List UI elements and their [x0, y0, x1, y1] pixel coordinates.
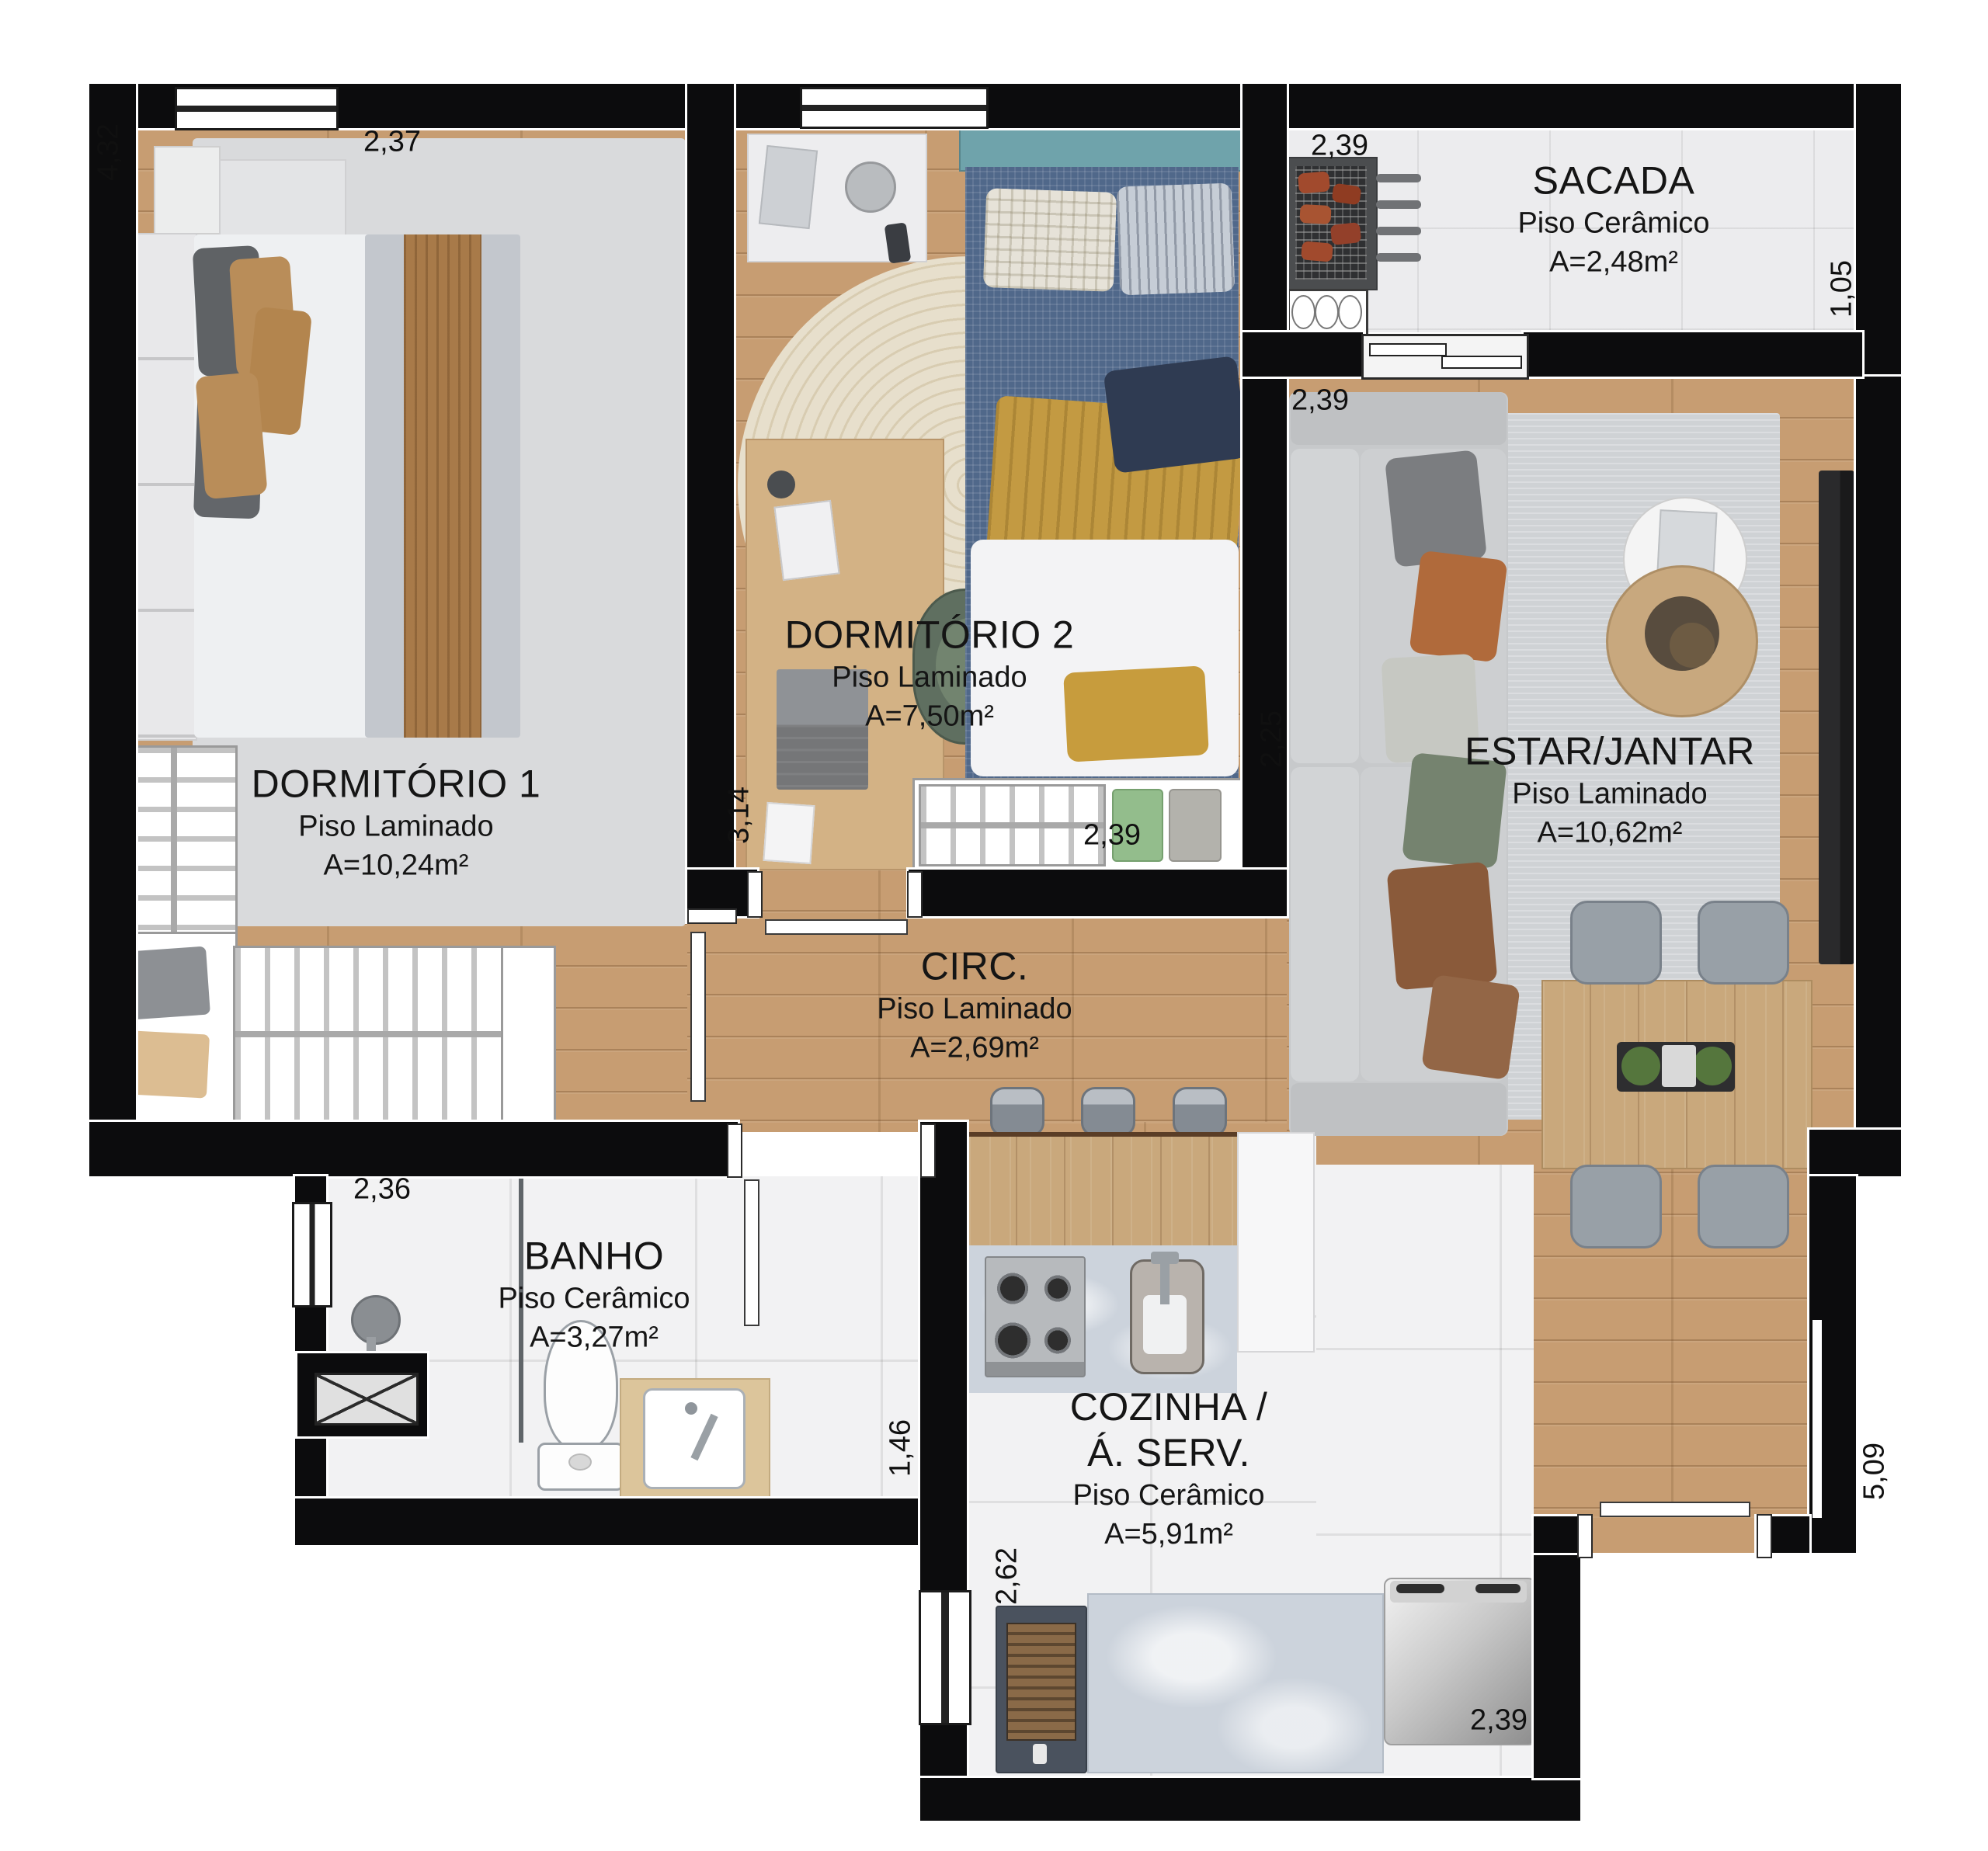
dorm1-folded-clothes-tan: [127, 1030, 210, 1098]
dim-banho-width: 2,36: [353, 1173, 411, 1207]
dim-banho-depth: 1,46: [885, 1419, 918, 1477]
washing-machine-handle-1: [1396, 1584, 1444, 1593]
washing-machine-handle-2: [1475, 1584, 1521, 1593]
dim-estar-side-height: 5,09: [1858, 1443, 1892, 1500]
dorm1-nightstand: [154, 146, 221, 234]
sacada-counter-ring-3: [1338, 295, 1362, 329]
dorm1-area: A=10,24m²: [252, 846, 541, 885]
centerpiece-pebbles: [1662, 1045, 1696, 1087]
sofa-back-cushion-2: [1291, 767, 1359, 1082]
banho-door-jamb-left: [727, 1123, 742, 1178]
wall-sacada-slider-stub: [1242, 332, 1363, 377]
circ-floor-type: Piso Laminado: [877, 989, 1072, 1028]
banho-sink-drain: [685, 1402, 697, 1415]
dorm2-closet-hangers: [919, 784, 1106, 866]
coffee-table-plant-2: [1670, 623, 1715, 668]
dorm2-book: [759, 145, 818, 229]
room-label-banho: BANHO Piso Cerâmico A=3,27m²: [498, 1233, 690, 1356]
wall-cozinha-right: [1534, 1553, 1580, 1778]
dorm2-jacket-gray: [1169, 789, 1222, 862]
dorm1-closet-compartment: [501, 946, 556, 1123]
laundry-counter-marble: [1087, 1593, 1384, 1773]
room-label-dorm2: DORMITÓRIO 2 Piso Laminado A=7,50m²: [785, 612, 1075, 735]
circ-area: A=2,69m²: [877, 1029, 1072, 1068]
estar-name: ESTAR/JANTAR: [1465, 728, 1755, 774]
dorm2-desk-accessory: [767, 471, 795, 498]
toilet-flush-button: [568, 1453, 592, 1471]
dining-chair-1: [1570, 901, 1662, 985]
dorm1-window: [175, 87, 339, 130]
dorm1-closet-hangers-bottom: [233, 946, 506, 1123]
dorm1-name: DORMITÓRIO 1: [252, 761, 541, 807]
dorm1-bed-headboard: [134, 233, 197, 741]
dorm1-folded-clothes-gray: [127, 946, 210, 1020]
sacada-sliding-door-panel-1: [1369, 343, 1447, 356]
bar-stool-1: [990, 1087, 1044, 1137]
banho-door-leaf: [744, 1179, 759, 1326]
dim-dorm1-width: 2,37: [363, 126, 421, 159]
cozinha-name-line2: Á. SERV.: [1070, 1430, 1268, 1476]
floor-plan-canvas: DORMITÓRIO 1 Piso Laminado A=10,24m² DOR…: [0, 0, 1988, 1851]
laundry-faucet: [1033, 1744, 1047, 1764]
grill-skewer-1: [1376, 174, 1421, 182]
wall-sacada-right: [1856, 84, 1901, 377]
dorm2-name: DORMITÓRIO 2: [785, 612, 1075, 658]
room-label-cozinha: COZINHA / Á. SERV. Piso Cerâmico A=5,91m…: [1070, 1384, 1268, 1554]
sofa-arm-bottom: [1291, 1083, 1507, 1136]
dorm1-floor-type: Piso Laminado: [252, 807, 541, 846]
dorm2-pillow-yellow: [1063, 665, 1209, 762]
grill-meat-1: [1298, 171, 1330, 193]
banho-name: BANHO: [498, 1233, 690, 1279]
dim-dorm1-height: 4,32: [92, 123, 126, 181]
sofa-pillow-gray: [1385, 450, 1487, 568]
bar-stool-3: [1173, 1087, 1227, 1137]
dining-chair-2: [1698, 901, 1789, 985]
wall-dorm2-sacada-estar: [1242, 84, 1287, 916]
sacada-sliding-door-panel-2: [1441, 356, 1522, 369]
sofa-pillow-brown-1: [1386, 862, 1497, 991]
estar-wall-trim: [1812, 1320, 1822, 1518]
cozinha-area: A=5,91m²: [1070, 1515, 1268, 1554]
sofa-pillow-rust: [1409, 550, 1507, 663]
laundry-washboard: [1006, 1623, 1076, 1741]
wall-right-step: [1809, 1130, 1901, 1176]
dim-cozinha-height: 2,62: [991, 1547, 1024, 1605]
banho-door-jamb-right: [920, 1123, 936, 1178]
sofa-back-cushion-1: [1291, 449, 1359, 763]
sofa-pillow-brown-2: [1421, 974, 1521, 1080]
dorm2-pillow-navy: [1103, 356, 1249, 474]
dorm2-tablet: [773, 500, 839, 581]
estar-floor-type: Piso Laminado: [1465, 774, 1755, 813]
dorm2-door-jamb-left: [747, 871, 763, 918]
sacada-floor-type: Piso Cerâmico: [1517, 203, 1709, 242]
grill-skewer-2: [1376, 200, 1421, 209]
circ-name: CIRC.: [877, 943, 1072, 989]
wall-sacada-estar-divider: [1524, 332, 1862, 377]
dorm2-table-lamp: [845, 161, 896, 213]
dorm1-bed-throw-runner: [404, 234, 481, 738]
entrance-door-jamb-left: [1577, 1514, 1593, 1558]
wall-cozinha-bottom: [920, 1778, 1580, 1821]
dorm2-papers: [763, 802, 815, 864]
entrance-threshold-floor: [1590, 1516, 1757, 1553]
dim-dorm2-height: 3,14: [723, 787, 756, 844]
cozinha-floor-type: Piso Cerâmico: [1070, 1476, 1268, 1515]
banho-window: [292, 1202, 332, 1308]
dorm2-pillow-plaid: [983, 188, 1117, 292]
sacada-area: A=2,48m²: [1517, 243, 1709, 282]
dorm2-door-leaf: [765, 919, 908, 935]
wall-top: [89, 84, 1901, 128]
sacada-name: SACADA: [1517, 158, 1709, 203]
centerpiece-plant-1: [1621, 1047, 1660, 1085]
shower-head: [351, 1295, 401, 1345]
dim-estar-depth: 2,25: [1256, 710, 1289, 768]
room-label-sacada: SACADA Piso Cerâmico A=2,48m²: [1517, 158, 1709, 281]
wall-dorm2-bottom-right: [909, 870, 1287, 916]
dorm1-pillow-brown-3: [195, 372, 267, 499]
room-label-circ: CIRC. Piso Laminado A=2,69m²: [877, 943, 1072, 1067]
dorm1-door-jamb: [687, 908, 737, 924]
room-label-dorm1: DORMITÓRIO 1 Piso Laminado A=10,24m²: [252, 761, 541, 884]
grill-meat-4: [1330, 222, 1362, 245]
dorm2-pillow-striped: [1117, 182, 1236, 295]
wall-circ-bottom-left: [89, 1122, 738, 1176]
banho-area: A=3,27m²: [498, 1318, 690, 1357]
dorm2-door-jamb-right: [907, 871, 923, 918]
dim-sacada-width: 2,39: [1311, 130, 1368, 163]
entrance-door-leaf: [1600, 1502, 1750, 1517]
wall-estar-right-upper: [1856, 377, 1901, 1176]
entrance-door-jamb-right: [1757, 1514, 1772, 1558]
grill-meat-5: [1301, 241, 1333, 262]
grill-skewer-4: [1376, 253, 1421, 262]
bar-stool-2: [1081, 1087, 1135, 1137]
grill-meat-2: [1332, 183, 1362, 206]
dorm2-window: [800, 87, 989, 129]
cozinha-name-line1: COZINHA /: [1070, 1384, 1268, 1430]
wall-banho-bottom: [295, 1499, 967, 1545]
banho-floor-type: Piso Cerâmico: [498, 1279, 690, 1318]
utility-shaft-box: [315, 1373, 419, 1426]
dorm2-floor-type: Piso Laminado: [785, 658, 1075, 696]
dim-sacada-depth: 1,05: [1826, 260, 1859, 318]
estar-area: A=10,62m²: [1465, 814, 1755, 853]
kitchen-bar-counter: [969, 1132, 1237, 1250]
grill-skewer-3: [1376, 227, 1421, 235]
kitchen-faucet-stem: [1160, 1262, 1170, 1304]
sacada-counter-ring-1: [1291, 295, 1315, 329]
dim-estar-width: 2,39: [1291, 384, 1349, 418]
dorm2-area: A=7,50m²: [785, 697, 1075, 736]
dim-cozinha-width: 2,39: [1470, 1704, 1527, 1738]
room-label-estar: ESTAR/JANTAR Piso Laminado A=10,62m²: [1465, 728, 1755, 852]
dining-chair-3: [1570, 1165, 1662, 1248]
dim-dorm2-width: 2,39: [1083, 819, 1141, 853]
dorm1-door-leaf: [690, 932, 706, 1102]
sacada-counter-ring-2: [1315, 295, 1339, 329]
centerpiece-plant-2: [1693, 1047, 1732, 1085]
kitchen-cooktop: [985, 1256, 1086, 1377]
kitchen-cabinet-white: [1237, 1132, 1315, 1353]
grill-meat-3: [1299, 204, 1331, 224]
tv-panel: [1819, 471, 1854, 964]
cozinha-window: [919, 1590, 971, 1725]
dining-chair-4: [1698, 1165, 1789, 1248]
wall-left: [89, 84, 136, 1176]
